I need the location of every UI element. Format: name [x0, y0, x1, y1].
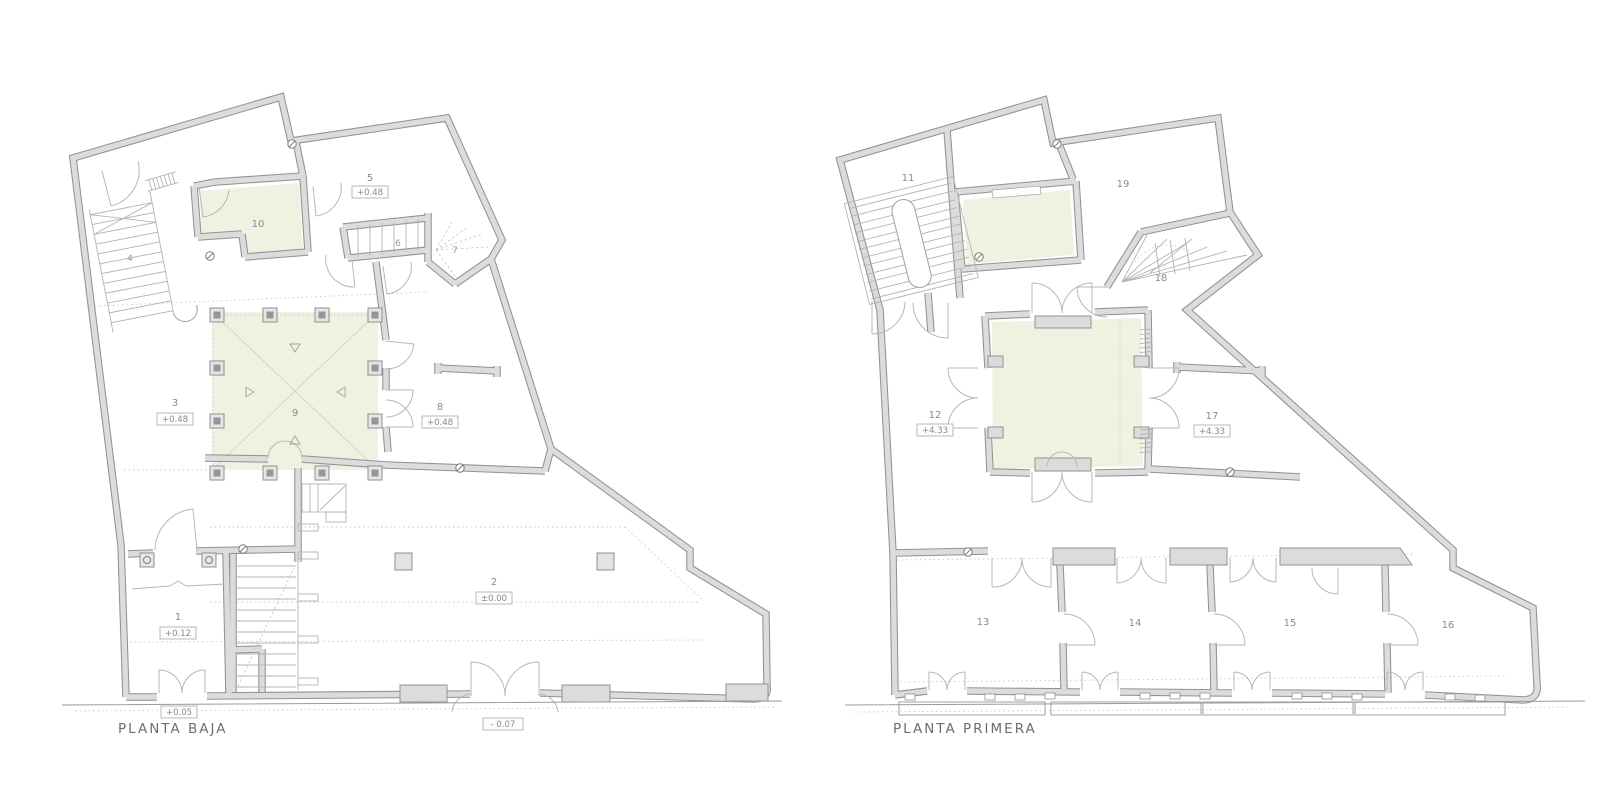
- floor-plans-drawing: 1 +0.12 2 ±0.00 3 +0.48 4 5 +0.48 6 7 8 …: [0, 0, 1600, 790]
- room-12-number: 12: [929, 410, 942, 421]
- room-5-elevation: +0.48: [352, 186, 388, 198]
- svg-text:+0.05: +0.05: [166, 708, 192, 718]
- room-8-number: 8: [437, 402, 443, 413]
- room-6-number: 6: [395, 239, 401, 249]
- svg-text:+4.33: +4.33: [922, 426, 948, 436]
- core-stairs: [236, 484, 346, 690]
- svg-text:+0.48: +0.48: [427, 418, 453, 428]
- svg-text:+4.33: +4.33: [1199, 427, 1225, 437]
- room-18-number: 18: [1155, 273, 1168, 284]
- room-1-number: 1: [175, 612, 181, 623]
- stair-room-4: [88, 186, 199, 335]
- architectural-drawing-sheet: 1 +0.12 2 ±0.00 3 +0.48 4 5 +0.48 6 7 8 …: [0, 0, 1600, 790]
- balcony-hatch: [145, 172, 179, 191]
- room-13-number: 13: [977, 617, 990, 628]
- room-3-elevation: +0.48: [157, 413, 193, 425]
- room-2-number: 2: [491, 577, 497, 588]
- svg-text:- 0.07: - 0.07: [491, 720, 516, 730]
- room-3-number: 3: [172, 398, 178, 409]
- room-9-number: 9: [292, 408, 298, 419]
- room-7-number: 7: [452, 246, 458, 256]
- street-level-left-label: +0.05: [161, 706, 197, 718]
- walls: [840, 100, 1537, 700]
- room-1-elevation: +0.12: [160, 627, 196, 639]
- room-16-number: 16: [1442, 620, 1455, 631]
- room-10-number: 10: [252, 219, 265, 230]
- room-17-elevation: +4.33: [1194, 425, 1230, 437]
- plan-title-planta-primera: PLANTA PRIMERA: [893, 721, 1037, 737]
- room-8-elevation: +0.48: [422, 416, 458, 428]
- room-5-number: 5: [367, 173, 373, 184]
- plan-title-planta-baja: PLANTA BAJA: [118, 721, 228, 737]
- room-2-elevation: ±0.00: [476, 592, 512, 604]
- street-level-right-label: - 0.07: [483, 718, 523, 730]
- svg-text:+0.48: +0.48: [162, 415, 188, 425]
- room-11-number: 11: [902, 173, 915, 184]
- reference-dotted-lines: [75, 292, 775, 711]
- room-17-number: 17: [1206, 411, 1219, 422]
- svg-text:+0.12: +0.12: [165, 629, 191, 639]
- room-12-elevation: +4.33: [917, 424, 953, 436]
- room-15-number: 15: [1284, 618, 1297, 629]
- room-14-number: 14: [1129, 618, 1142, 629]
- floor-plan-planta-baja: 1 +0.12 2 ±0.00 3 +0.48 4 5 +0.48 6 7 8 …: [73, 97, 775, 737]
- room-19-number: 19: [1117, 179, 1130, 190]
- wall-pilasters: [140, 553, 614, 570]
- room-4-number: 4: [127, 254, 133, 264]
- svg-text:+0.48: +0.48: [357, 188, 383, 198]
- room-1-step-mark: [132, 581, 225, 589]
- svg-text:±0.00: ±0.00: [481, 594, 507, 604]
- floor-plan-planta-primera: 11 12 +4.33 13 14 15 16 17 +4.33 18 19 P…: [840, 100, 1570, 737]
